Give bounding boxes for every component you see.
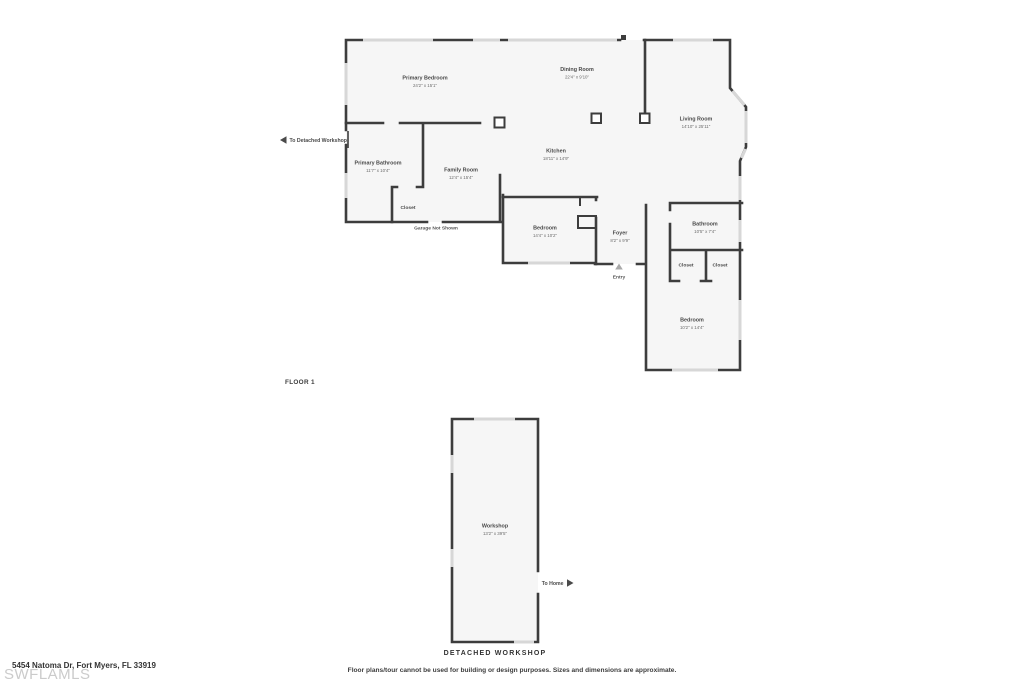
room-label-primary-bedroom: Primary Bedroom [402,76,447,82]
room-label-closet-left: Closet [679,263,694,269]
entry-label: Entry [613,275,626,281]
floor-1-label: FLOOR 1 [285,379,315,386]
porch-post [621,35,626,40]
to-workshop-arrow-icon [280,136,287,143]
column-post [495,118,505,128]
room-label-family-room: Family Room [444,168,478,174]
to-detached-workshop-label: To Detached Workshop [290,138,347,144]
room-dims-dining-room: 22'4" x 9'10" [565,75,590,80]
room-dims-kitchen: 18'11" x 14'9" [543,156,570,161]
room-label-dining-room: Dining Room [560,67,594,73]
room-dims-bathroom: 10'5" x 7'4" [694,229,716,234]
room-label-kitchen: Kitchen [546,149,566,155]
room-dims-bedroom-right: 10'2" x 14'4" [680,325,705,330]
room-label-bedroom-right: Bedroom [680,318,704,324]
room-label-bathroom: Bathroom [692,222,718,228]
room-dims-workshop: 13'2" x 39'5" [483,531,508,536]
room-label-workshop: Workshop [482,524,509,530]
to-home-arrow-icon [567,579,574,586]
column-post [592,114,602,124]
garage-not-shown-note: Garage Not Shown [414,226,458,232]
floor-plan-page: Primary Bedroom 24'2" x 15'1" Dining Roo… [0,0,1024,682]
room-label-foyer: Foyer [613,231,629,237]
room-label-closet-hall: Closet [401,205,416,211]
entry-arrow-icon [615,264,623,270]
room-dims-family-room: 12'4" x 15'4" [449,175,474,180]
detached-workshop-caption: DETACHED WORKSHOP [444,650,547,657]
room-label-primary-bathroom: Primary Bathroom [354,161,401,167]
room-dims-foyer: 8'2" x 9'9" [610,238,630,243]
room-label-closet-right: Closet [713,263,728,269]
floor-plan-drawing: Primary Bedroom 24'2" x 15'1" Dining Roo… [0,0,1024,682]
room-label-bedroom-middle: Bedroom [533,226,557,232]
to-home-label: To Home [542,581,564,587]
room-label-living-room: Living Room [680,117,713,123]
column-post [640,114,650,124]
disclaimer-text: Floor plans/tour cannot be used for buil… [0,667,1024,674]
room-dims-primary-bathroom: 11'7" x 10'4" [366,168,390,173]
room-dims-bedroom-middle: 14'4" x 10'2" [533,233,558,238]
room-dims-living-room: 14'10" x 25'11" [682,124,711,129]
room-dims-primary-bedroom: 24'2" x 15'1" [413,83,438,88]
